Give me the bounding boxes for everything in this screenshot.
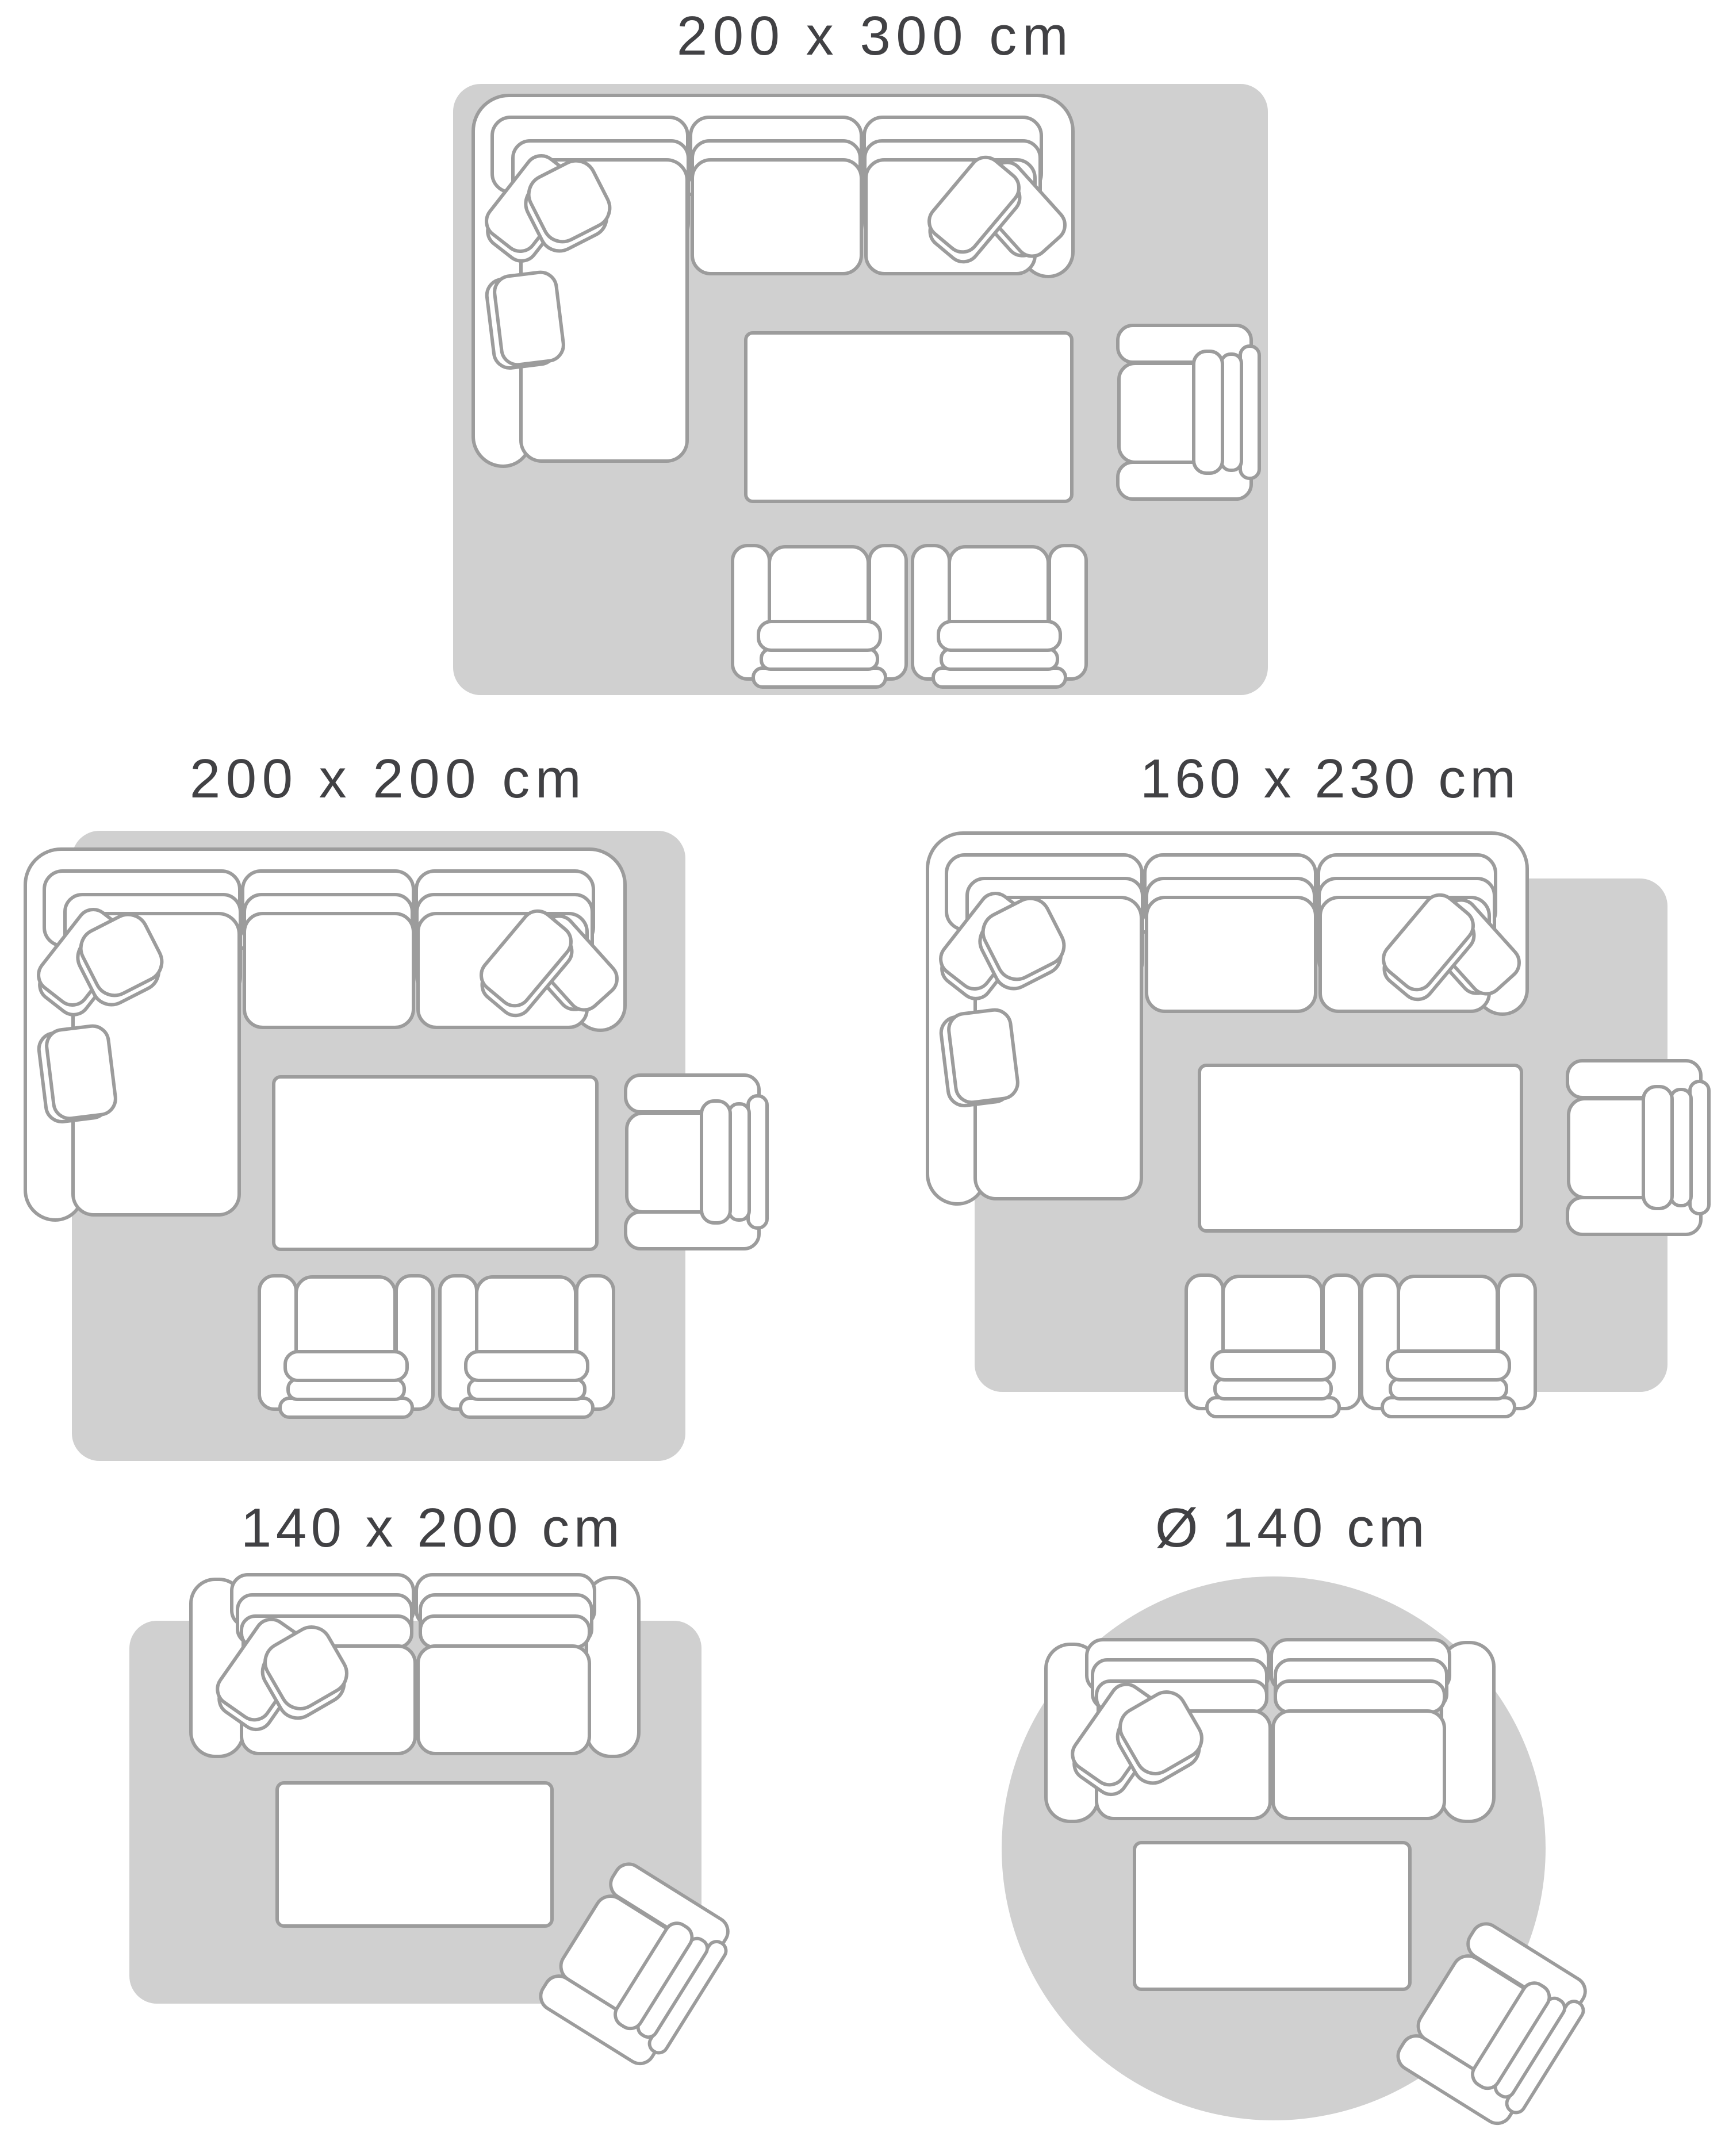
svg-text:140 x 200 cm: 140 x 200 cm [241,1497,624,1559]
svg-text:200 x 200 cm: 200 x 200 cm [190,748,586,810]
svg-text:Ø 140 cm: Ø 140 cm [1155,1497,1429,1559]
svg-text:160 x 230 cm: 160 x 230 cm [1140,748,1520,810]
svg-text:200 x 300 cm: 200 x 300 cm [677,5,1074,67]
